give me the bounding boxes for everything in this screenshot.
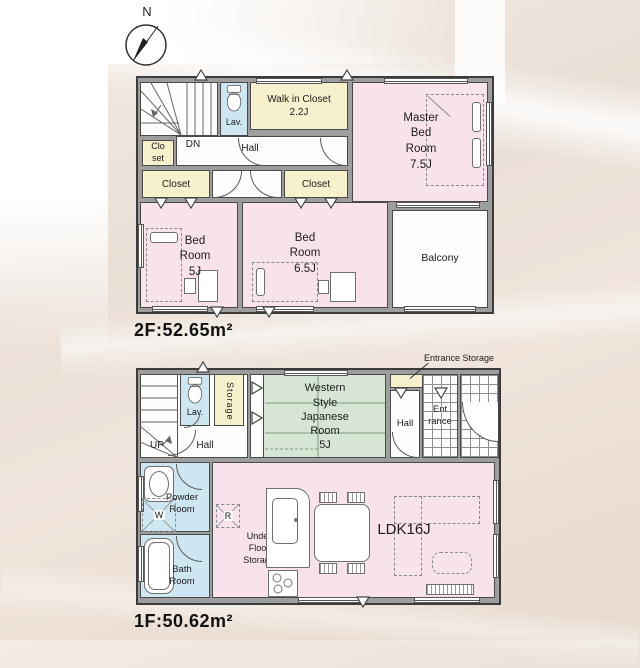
room-balcony: Balcony [392,210,488,308]
pillow-icon [150,232,178,243]
closet-door-mark [154,197,168,209]
label-washer: W [154,510,165,520]
window [284,370,348,376]
stairs-icon [141,83,217,135]
window [152,306,208,312]
closet-door-mark [184,197,198,209]
vent-triangle [262,306,276,318]
room-entrance-storage [390,374,426,388]
closet-door-mark [324,197,338,209]
background-highlight [0,0,108,355]
chair-icon [318,280,329,294]
sofa-icon [394,496,422,576]
chair-icon [319,563,337,574]
room-walk-in-closet: Walk in Closet 2.2J [250,82,348,130]
background-highlight [0,0,470,64]
closet-door-mark [294,197,308,209]
coffee-table-icon [432,552,472,574]
vent-triangle [340,69,354,81]
desk-icon [198,270,218,302]
vent-triangle [194,69,208,81]
floor-area-label-1f: 1F:50.62m² [134,611,233,632]
pillow-icon [472,138,481,168]
window [414,597,480,603]
washer-icon: W [142,498,176,532]
vent-triangle [210,306,224,318]
chair-icon [319,492,337,503]
window [256,78,322,84]
window [138,224,144,268]
pillow-icon [256,268,265,296]
floor-area-label-2f: 2F:52.65m² [134,320,233,341]
toilet-icon [185,376,205,406]
desk-icon [330,272,356,302]
pillow-icon [472,102,481,132]
dining-table-icon [314,504,370,562]
window [298,597,360,603]
refrigerator-icon: R [216,504,240,528]
closet-door-mark [394,387,408,399]
tatami-lines [251,375,385,457]
vent-triangle [356,596,370,608]
svg-text:N: N [142,4,151,19]
tv-board-icon [426,584,474,595]
chair-icon [184,278,196,294]
chair-icon [347,492,365,503]
toilet-icon [224,84,244,114]
window [486,102,492,166]
faucet-dot [294,518,298,522]
stove-icon [268,570,298,597]
window [493,480,499,524]
chair-icon [347,563,365,574]
floor-plan-1f: Lav. Storage UP Hall Western Style Japan… [136,368,501,605]
bathtub-inner [148,542,170,590]
sliding-door-mark [251,411,263,425]
room-closet-left: Closet [142,170,210,198]
vent-triangle [196,361,210,373]
label-entrance-storage: Entrance Storage [424,352,518,365]
burner-circles [269,571,297,596]
window [384,78,468,84]
closet-door-mark [434,387,448,399]
room-storage-1f [214,374,244,426]
sliding-door-mark [251,381,263,395]
floor-plan-2f: Lav. Walk in Closet 2.2J Clo set DN Hall… [136,76,494,314]
window [404,306,476,312]
window [396,202,480,208]
basin-bowl-icon [149,471,169,497]
room-stairs-2f [140,82,218,136]
room-closet-right: Closet [284,170,348,198]
window [493,534,499,578]
label-refrigerator: R [224,511,233,521]
compass-icon: N [118,2,176,70]
room-closet-small: Clo set [142,140,174,166]
